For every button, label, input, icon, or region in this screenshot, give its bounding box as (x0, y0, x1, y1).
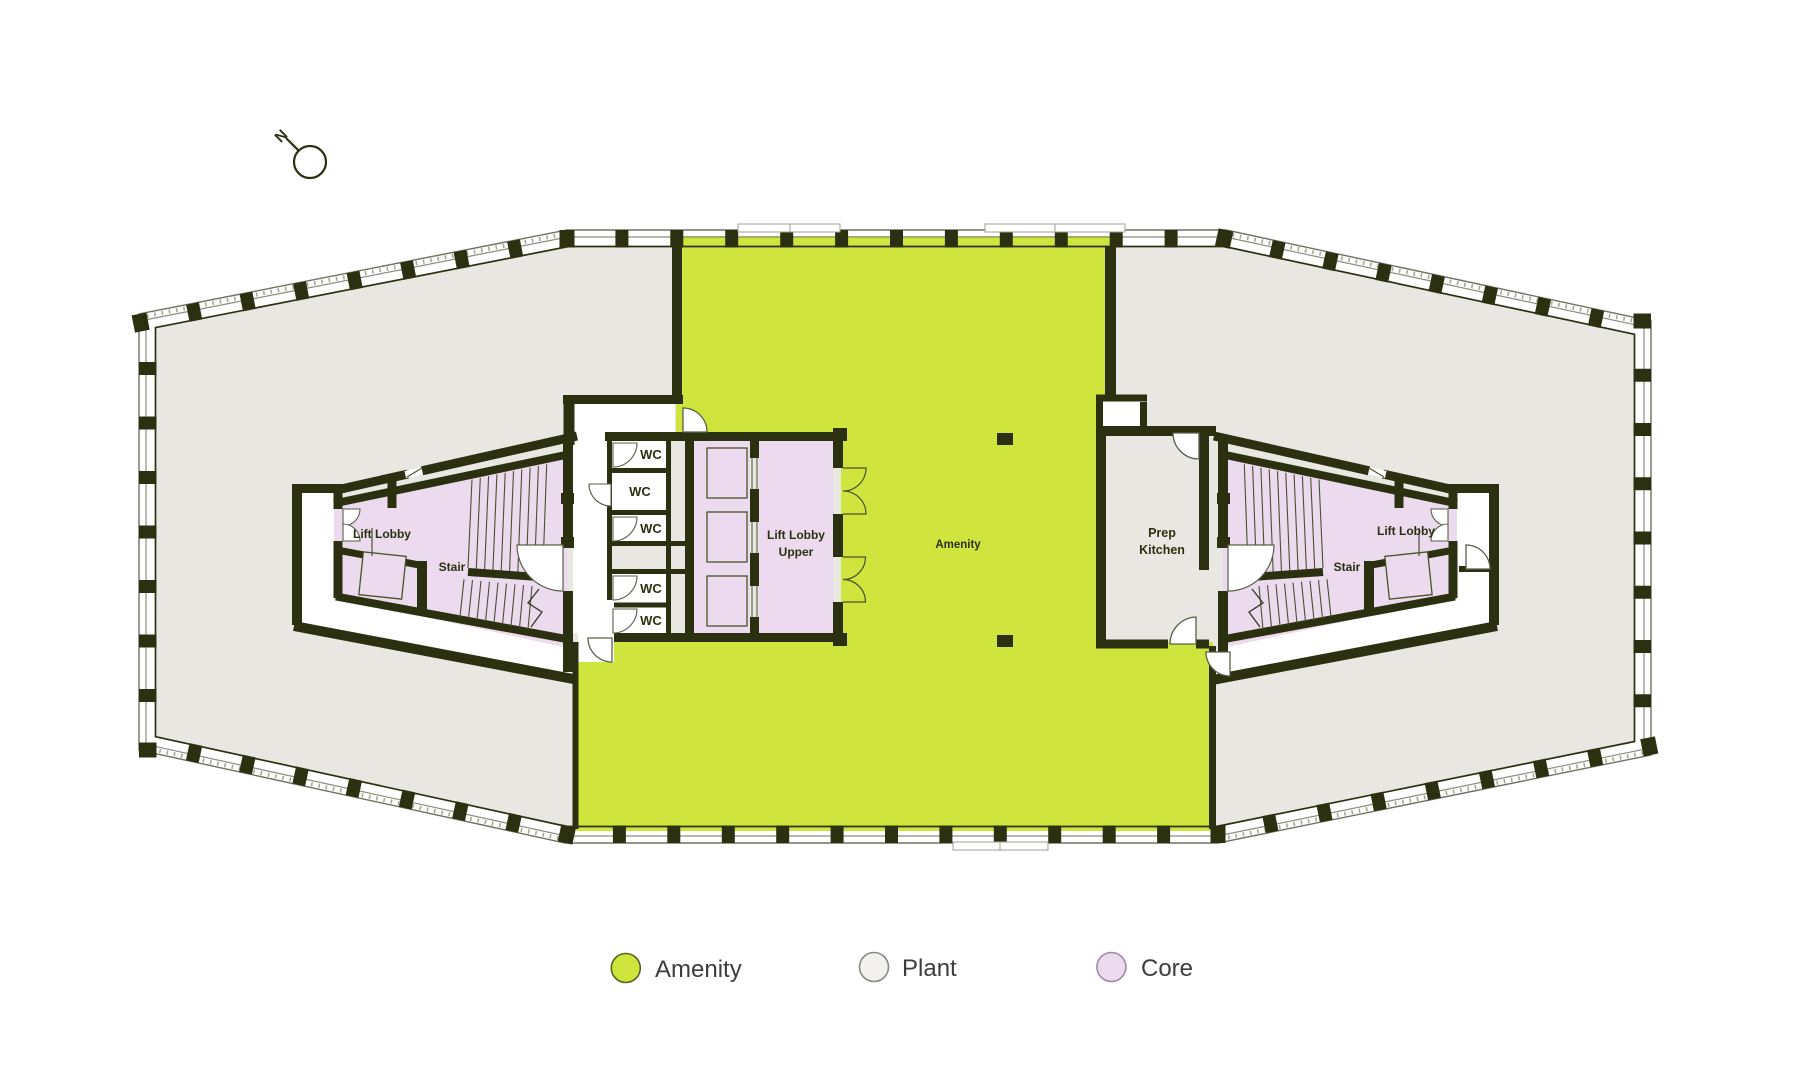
svg-text:WC: WC (640, 581, 662, 596)
svg-text:Lift Lobby: Lift Lobby (1377, 524, 1435, 538)
svg-text:Kitchen: Kitchen (1139, 543, 1185, 557)
svg-text:Core: Core (1141, 955, 1193, 982)
svg-text:N: N (272, 127, 292, 147)
svg-text:WC: WC (629, 484, 651, 499)
svg-text:Lift Lobby: Lift Lobby (353, 527, 411, 541)
svg-text:Plant: Plant (902, 955, 957, 982)
svg-text:Stair: Stair (1334, 560, 1361, 574)
svg-text:Upper: Upper (779, 545, 814, 559)
svg-text:WC: WC (640, 521, 662, 536)
svg-text:Stair: Stair (439, 560, 466, 574)
svg-text:WC: WC (640, 447, 662, 462)
svg-text:Prep: Prep (1148, 526, 1176, 540)
svg-text:Amenity: Amenity (935, 539, 981, 551)
svg-text:WC: WC (640, 613, 662, 628)
svg-text:Amenity: Amenity (655, 956, 742, 983)
svg-text:Lift Lobby: Lift Lobby (767, 528, 825, 542)
